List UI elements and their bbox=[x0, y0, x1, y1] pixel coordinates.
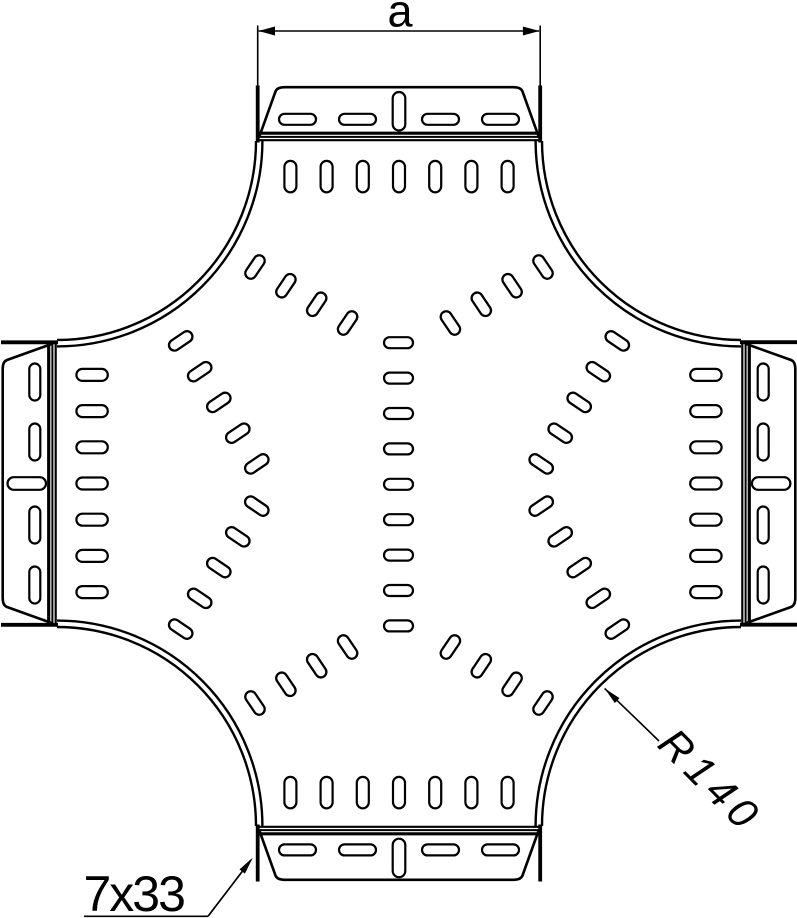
svg-text:7x33: 7x33 bbox=[84, 866, 185, 918]
svg-text:a: a bbox=[387, 0, 413, 37]
